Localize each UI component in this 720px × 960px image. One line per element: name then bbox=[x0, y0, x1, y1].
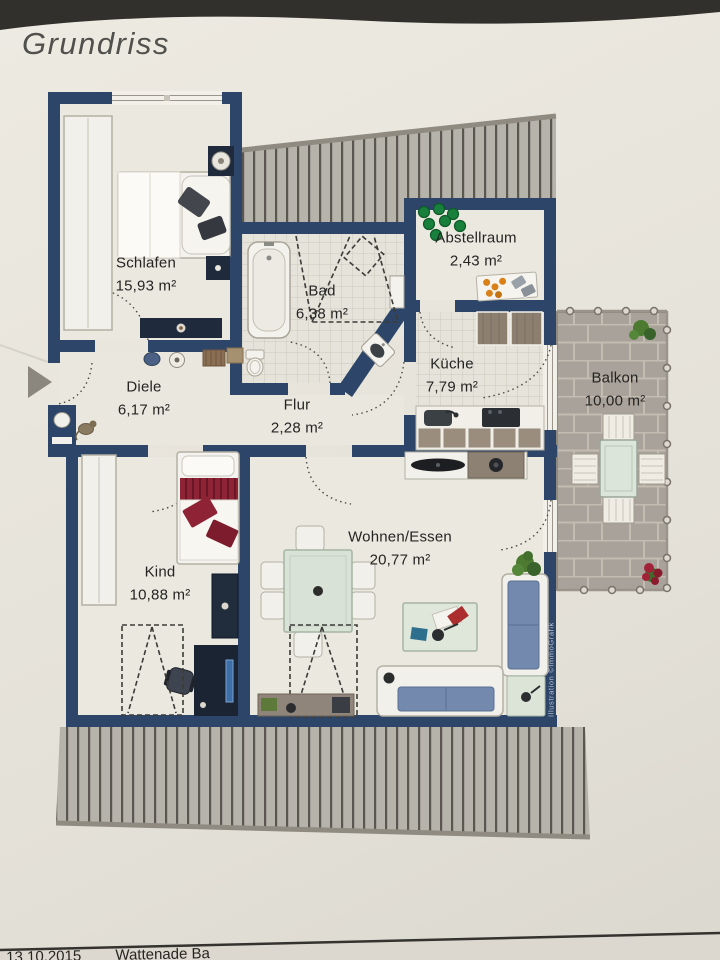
entrance-arrow-icon bbox=[28, 366, 52, 398]
window-schlafen bbox=[112, 91, 222, 105]
double-bed-icon bbox=[118, 172, 230, 258]
room-area: 20,77 m² bbox=[348, 549, 452, 572]
room-area: 7,79 m² bbox=[426, 376, 478, 399]
room-label-wohnen: Wohnen/Essen 20,77 m² bbox=[348, 527, 452, 572]
room-label-kueche: Küche 7,79 m² bbox=[426, 354, 478, 399]
room-name: Wohnen/Essen bbox=[348, 527, 452, 550]
nightstand-icon bbox=[208, 146, 234, 176]
nightstand-icon bbox=[206, 256, 230, 280]
storage-box-icon bbox=[476, 272, 538, 301]
single-bed-icon bbox=[177, 452, 239, 564]
room-name: Abstellraum bbox=[435, 228, 516, 251]
room-label-diele: Diele 6,17 m² bbox=[118, 377, 170, 422]
room-label-balkon: Balkon 10,00 m² bbox=[585, 368, 646, 413]
room-area: 10,88 m² bbox=[130, 584, 191, 607]
room-name: Bad bbox=[296, 281, 348, 304]
room-area: 6,17 m² bbox=[118, 399, 170, 422]
tv-bench-icon bbox=[405, 452, 527, 479]
sideboard-icon bbox=[258, 694, 354, 716]
room-area: 2,28 m² bbox=[271, 417, 323, 440]
balcony-table-icon bbox=[600, 440, 637, 497]
room-name: Balkon bbox=[585, 368, 646, 391]
room-name: Diele bbox=[118, 377, 170, 400]
roof-hatch-bottom bbox=[56, 727, 590, 838]
dresser-icon bbox=[212, 574, 238, 638]
desk-icon bbox=[194, 645, 238, 716]
room-area: 10,00 m² bbox=[585, 390, 646, 413]
bowl-icon bbox=[144, 353, 160, 366]
room-name: Küche bbox=[426, 354, 478, 377]
room-name: Kind bbox=[130, 562, 191, 585]
lowboard-icon bbox=[140, 318, 222, 338]
room-label-schlafen: Schlafen 15,93 m² bbox=[116, 253, 177, 298]
box-icon bbox=[227, 348, 243, 363]
page-title: Grundriss bbox=[22, 26, 170, 62]
room-name: Schlafen bbox=[116, 253, 177, 276]
room-name: Flur bbox=[271, 395, 323, 418]
room-label-flur: Flur 2,28 m² bbox=[271, 395, 323, 440]
room-area: 2,43 m² bbox=[435, 250, 516, 273]
coffee-table-icon bbox=[403, 603, 477, 651]
footer-note: Wattenade Ba bbox=[115, 945, 210, 960]
room-label-abstellraum: Abstellraum 2,43 m² bbox=[435, 228, 516, 273]
illustration-credit: Illustration ©ImmoGrafik bbox=[547, 615, 556, 725]
floorplan-drawing bbox=[0, 0, 720, 960]
balcony-door-wohnen bbox=[543, 500, 557, 552]
room-label-bad: Bad 6,38 m² bbox=[296, 281, 348, 326]
floorplan-photo: Grundriss Schlafen 15,93 m² Bad 6,38 m² … bbox=[0, 0, 720, 960]
kitchen-counter-icon bbox=[416, 406, 544, 450]
balcony-door-kueche bbox=[543, 345, 557, 430]
toilet-icon bbox=[246, 350, 264, 376]
side-table-icon bbox=[507, 676, 545, 716]
bathtub-icon bbox=[248, 242, 290, 338]
room-label-kind: Kind 10,88 m² bbox=[130, 562, 191, 607]
room-area: 15,93 m² bbox=[116, 275, 177, 298]
footer-date: 13.10.2015 bbox=[6, 948, 81, 960]
paper-fold-line bbox=[0, 345, 48, 362]
room-area: 6,38 m² bbox=[296, 303, 348, 326]
